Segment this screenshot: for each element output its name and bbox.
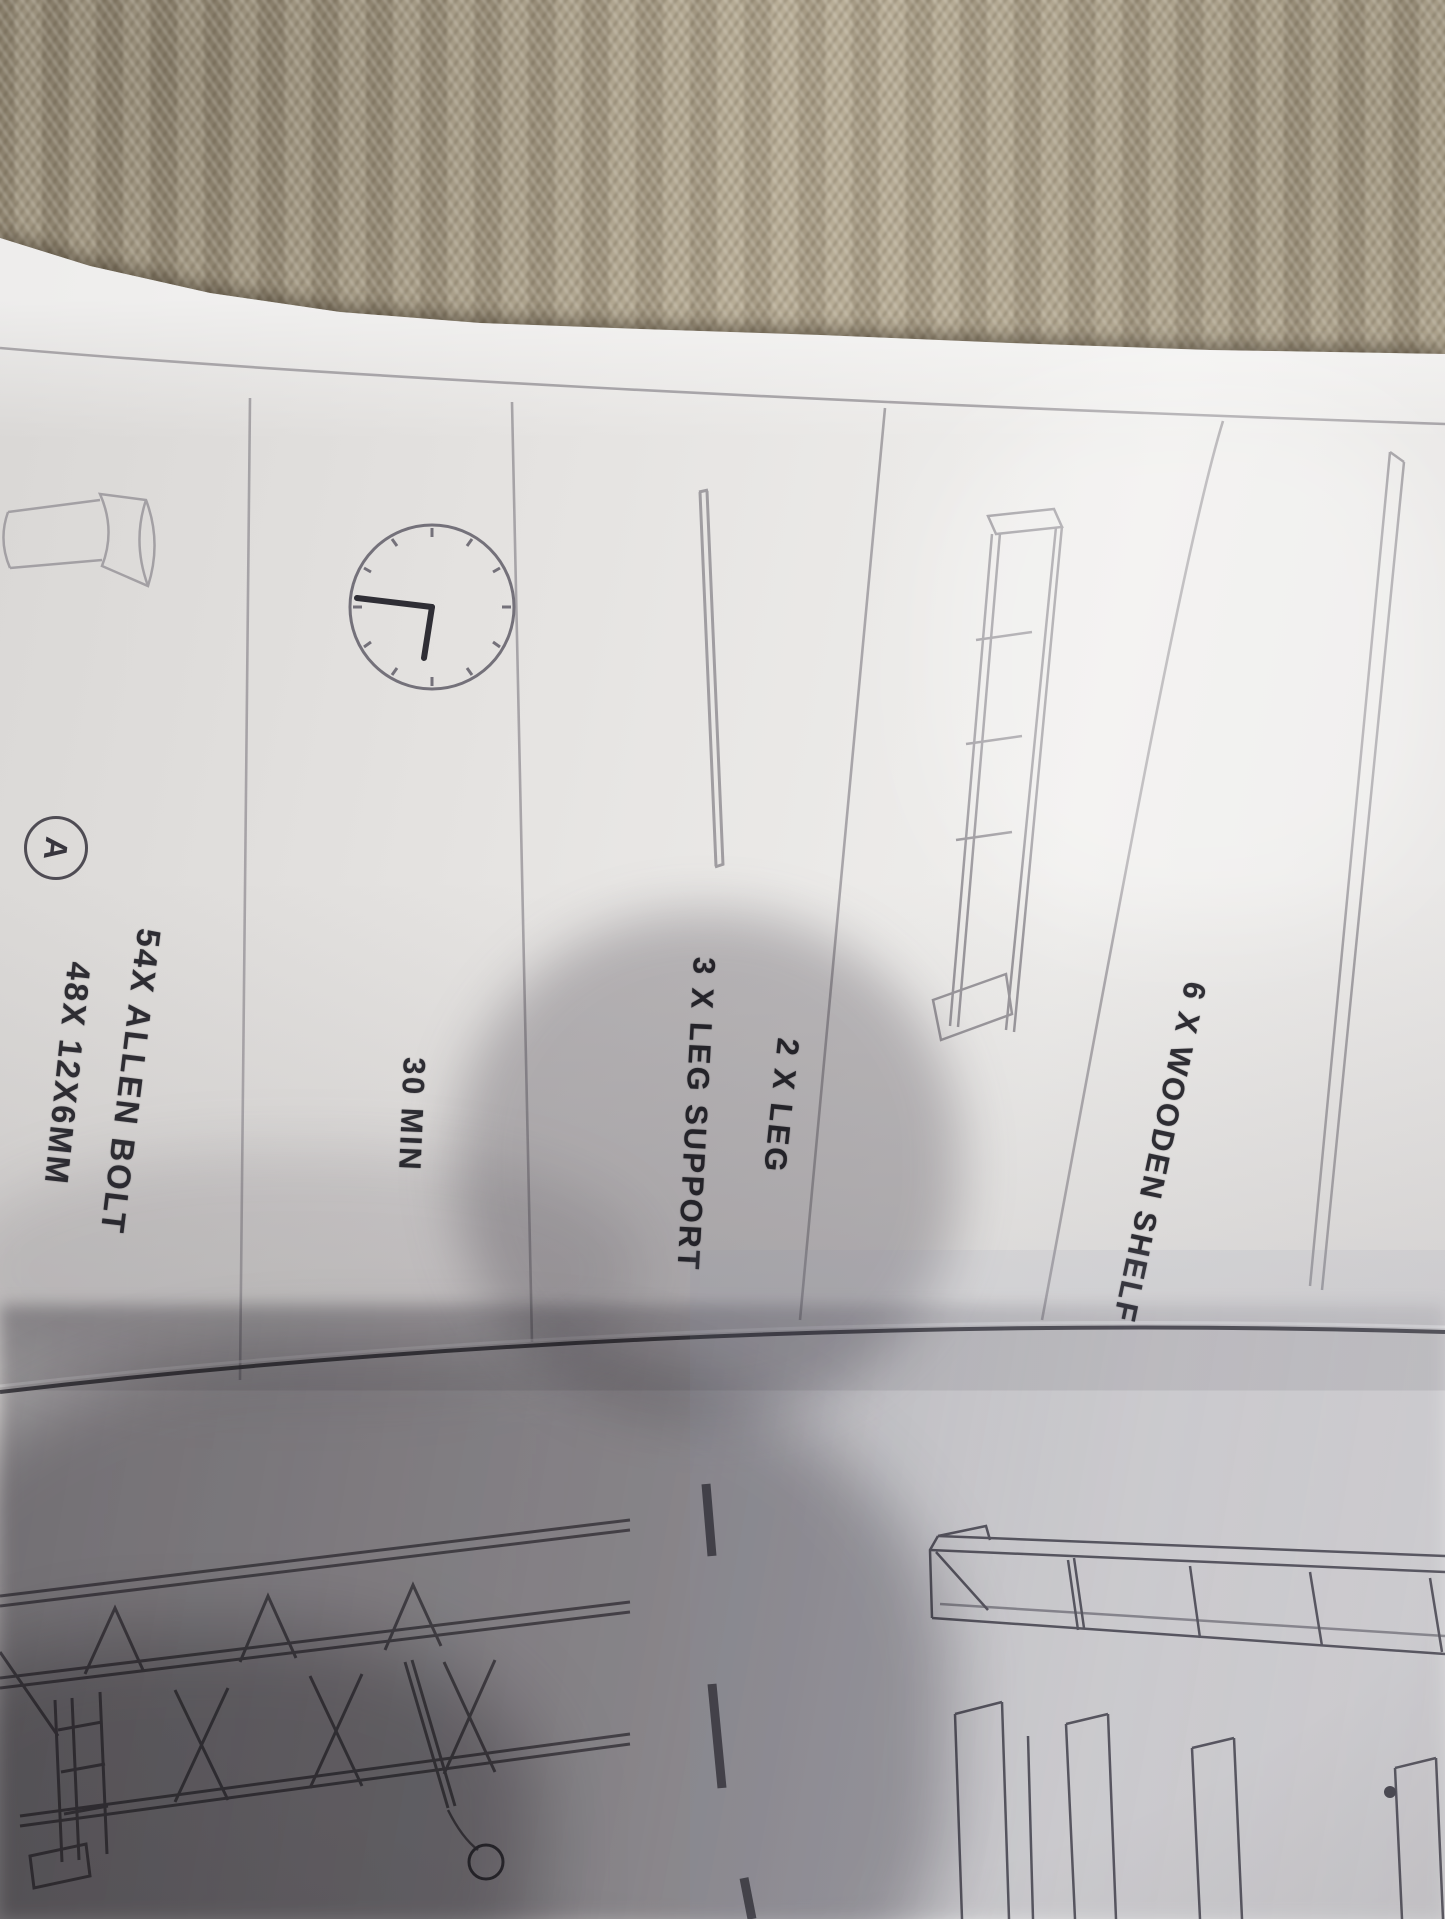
assembly-diagram-left-shadow-parts <box>706 1484 752 1919</box>
label-assembly-time: 30 MIN <box>391 1056 432 1172</box>
leg-drawing <box>933 509 1062 1040</box>
printed-artwork <box>0 0 1445 1919</box>
photo-of-instruction-sheet: 6 X WOODEN SHELF 2 X LEG 3 X LEG SUPPORT… <box>0 0 1445 1919</box>
marker-letter: A <box>36 834 76 861</box>
allen-bolt-icon <box>3 494 154 586</box>
assembly-diagram-left <box>0 1520 630 1888</box>
leg-support-drawing <box>699 490 724 867</box>
fold-line <box>0 1328 1445 1392</box>
wooden-shelf-drawing <box>1310 452 1404 1290</box>
clock-icon <box>350 525 514 689</box>
fold-highlight <box>0 1323 1445 1386</box>
circled-letter-marker <box>469 1845 503 1879</box>
circled-letter-a-marker: A <box>24 816 88 880</box>
assembly-diagram-right <box>930 1526 1445 1919</box>
